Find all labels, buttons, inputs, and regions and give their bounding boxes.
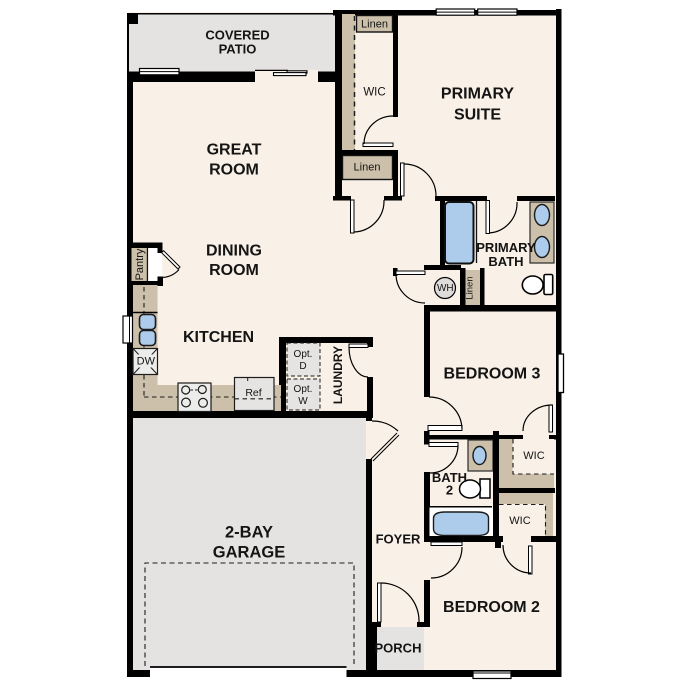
svg-text:Linen: Linen	[354, 162, 381, 174]
svg-text:2: 2	[446, 483, 453, 498]
svg-text:BATH: BATH	[488, 254, 523, 269]
svg-text:WIC: WIC	[509, 515, 530, 527]
svg-text:Pantry: Pantry	[134, 248, 146, 280]
svg-text:PATIO: PATIO	[219, 42, 257, 57]
svg-text:FOYER: FOYER	[376, 532, 421, 547]
svg-text:ROOM: ROOM	[209, 162, 259, 179]
svg-text:Opt.: Opt.	[294, 384, 313, 395]
svg-text:LAUNDRY: LAUNDRY	[331, 346, 345, 404]
svg-text:PRIMARY: PRIMARY	[476, 240, 536, 255]
svg-text:WIC: WIC	[523, 450, 544, 462]
svg-text:WH: WH	[437, 283, 454, 294]
svg-text:W: W	[298, 396, 308, 407]
svg-text:PRIMARY: PRIMARY	[441, 86, 515, 103]
svg-text:Linen: Linen	[465, 276, 476, 299]
svg-text:SUITE: SUITE	[454, 107, 501, 124]
svg-text:DINING: DINING	[206, 243, 262, 260]
svg-text:BEDROOM 3: BEDROOM 3	[444, 366, 541, 383]
svg-text:BEDROOM 2: BEDROOM 2	[443, 599, 540, 616]
svg-text:ROOM: ROOM	[209, 262, 259, 279]
svg-text:WIC: WIC	[363, 87, 385, 99]
svg-text:Ref: Ref	[245, 387, 261, 399]
svg-text:KITCHEN: KITCHEN	[183, 329, 254, 346]
svg-text:PORCH: PORCH	[375, 641, 422, 656]
svg-text:GARAGE: GARAGE	[213, 544, 285, 562]
svg-text:2-BAY: 2-BAY	[225, 524, 273, 542]
svg-text:Linen: Linen	[361, 19, 388, 31]
svg-text:GREAT: GREAT	[207, 142, 262, 159]
svg-text:Opt.: Opt.	[294, 349, 313, 360]
svg-text:DW: DW	[137, 356, 156, 368]
svg-text:D: D	[299, 361, 306, 372]
svg-text:COVERED: COVERED	[205, 28, 269, 43]
